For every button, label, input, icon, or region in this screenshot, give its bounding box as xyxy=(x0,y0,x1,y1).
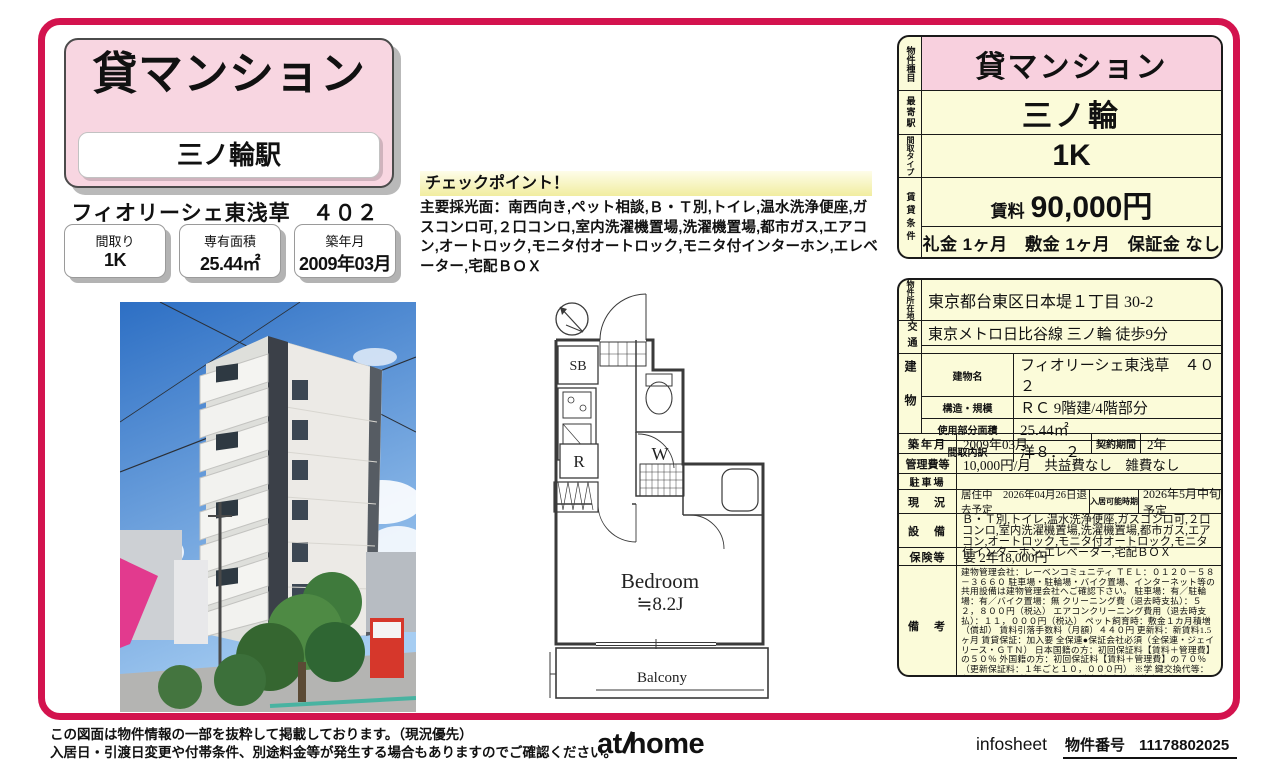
value-contract-period: 2年 xyxy=(1141,434,1221,453)
label-property-type: 物件種目 xyxy=(906,46,915,82)
label-rental-terms: 賃貸条件 xyxy=(906,192,915,244)
badge-layout-value: 1K xyxy=(65,250,165,271)
row-insurance: 保険等 要 2年18,000円 xyxy=(899,547,1221,565)
floorplan-label-w: W xyxy=(652,444,669,464)
label-fees: 管理費等 xyxy=(899,454,957,473)
floorplan-label-r: R xyxy=(573,452,585,471)
label-structure: 構造・規模 xyxy=(922,397,1014,418)
label-insurance: 保険等 xyxy=(899,548,957,565)
value-insurance: 要 2年18,000円 xyxy=(957,548,1221,565)
badge-area: 専有面積 25.44㎡ xyxy=(179,224,281,278)
rent-value: 90,000円 xyxy=(1031,182,1153,226)
value-fees: 10,000円/月 共益費なし 雑費なし xyxy=(957,454,1221,473)
floorplan-label-size: ≒8.2J xyxy=(636,594,683,615)
label-building-name: 建物名 xyxy=(922,354,1014,396)
label-built: 築年月 xyxy=(899,434,957,453)
label-access: 交通 xyxy=(905,321,915,353)
value-station: 三ノ輪 xyxy=(922,91,1221,134)
row-structure: 構造・規模 ＲＣ 9階建/4階部分 xyxy=(922,396,1221,418)
row-status: 現 況 居住中 2026年04月26日退去予定 入居可能時期 2026年5月中旬… xyxy=(899,489,1221,513)
property-number: 物件番号11178802025 xyxy=(1063,734,1237,759)
property-type-box: 貸マンション 三ノ輪駅 xyxy=(64,38,394,188)
value-equipment: Ｂ・Ｔ別,トイレ,温水洗浄便座,ガスコンロ可,２口コンロ,室内洗濯機置場,洗濯機… xyxy=(957,514,1221,547)
label-status: 現 況 xyxy=(899,490,957,513)
footer-notes: この図面は物件情報の一部を抜粋して掲載しております。（現況優先） 入居日・引渡日… xyxy=(50,726,617,761)
north-arrow-icon xyxy=(556,303,588,335)
row-fees: 管理費等 10,000円/月 共益費なし 雑費なし xyxy=(899,453,1221,473)
floorplan-label-bedroom: Bedroom xyxy=(621,569,699,593)
station-name-box: 三ノ輪駅 xyxy=(78,132,380,178)
value-access-line1: 東京メトロ日比谷線 三ノ輪 徒歩9分 xyxy=(922,321,1221,346)
row-equipment: 設 備 Ｂ・Ｔ別,トイレ,温水洗浄便座,ガスコンロ可,２口コンロ,室内洗濯機置場… xyxy=(899,513,1221,547)
row-layout-type: 間取タイプ 1K xyxy=(899,134,1221,177)
label-location: 物件所在地 xyxy=(906,280,914,320)
value-property-type: 貸マンション xyxy=(922,37,1221,90)
footer-note-1: この図面は物件情報の一部を抜粋して掲載しております。（現況優先） xyxy=(50,726,617,744)
row-location: 物件所在地 東京都台東区日本堤１丁目 30-2 xyxy=(899,280,1221,320)
label-move-in: 入居可能時期 xyxy=(1089,490,1139,513)
row-station: 最寄駅 三ノ輪 xyxy=(899,90,1221,134)
row-remarks: 備 考 建物管理会社：レーベンコミュニティ ＴＥＬ：０１２０－５８－３６６０ 駐… xyxy=(899,565,1221,677)
value-remarks: 建物管理会社：レーベンコミュニティ ＴＥＬ：０１２０－５８－３６６０ 駐車場・駐… xyxy=(957,566,1221,677)
value-building-name: フィオリーシェ東浅草 ４０２ xyxy=(1014,354,1221,396)
photo-vending-machine xyxy=(370,618,404,678)
floor-plan: SB R W Bedroom ≒8.2J Balcony xyxy=(536,292,794,716)
badge-built-value: 2009年03月 xyxy=(295,250,395,276)
footer-note-2: 入居日・引渡日変更や付帯条件、別途料金等が発生する場合もありますのでご確認くださ… xyxy=(50,744,617,761)
label-contract-period: 契約期間 xyxy=(1091,434,1141,453)
badge-layout-label: 間取り xyxy=(65,231,165,250)
value-status: 居住中 2026年04月26日退去予定 xyxy=(957,490,1089,513)
rent-label: 賃料 xyxy=(991,197,1025,222)
property-number-value: 11178802025 xyxy=(1139,737,1229,754)
label-building: 建物 xyxy=(904,360,916,428)
badge-row: 間取り 1K 専有面積 25.44㎡ 築年月 2009年03月 xyxy=(64,224,396,278)
badge-layout: 間取り 1K xyxy=(64,224,166,278)
rent-line: 賃料 90,000円 xyxy=(922,178,1221,226)
checkpoint-header: チェックポイント！ xyxy=(420,171,872,196)
property-name: フィオリーシェ東浅草 ４０２ xyxy=(50,197,400,227)
athome-logo-at: at xyxy=(597,728,622,761)
deposit-terms: 礼金 1ヶ月 敷金 1ヶ月 保証金 なし xyxy=(922,226,1221,257)
label-equipment: 設 備 xyxy=(899,514,957,547)
row-building: 建物 建物名 フィオリーシェ東浅草 ４０２ 構造・規模 ＲＣ 9階建/4階部分 … xyxy=(899,353,1221,433)
property-number-label: 物件番号 xyxy=(1065,737,1125,754)
floorplan-label-balcony: Balcony xyxy=(637,670,687,686)
checkpoint-body: 主要採光面：南西向き,ペット相談,Ｂ・Ｔ別,トイレ,温水洗浄便座,ガスコンロ可,… xyxy=(420,199,880,277)
infosheet-page: 貸マンション 三ノ輪駅 フィオリーシェ東浅草 ４０２ 間取り 1K 専有面積 2… xyxy=(0,0,1280,761)
value-access-line2 xyxy=(922,346,1221,353)
label-layout-type: 間取タイプ xyxy=(906,136,914,176)
label-remarks: 備 考 xyxy=(899,566,957,677)
value-built: 2009年03月 xyxy=(957,434,1091,453)
value-move-in: 2026年5月中旬予定 xyxy=(1139,490,1221,513)
label-parking: 駐車場 xyxy=(899,474,957,489)
value-location: 東京都台東区日本堤１丁目 30-2 xyxy=(922,280,1221,320)
badge-built-label: 築年月 xyxy=(295,231,395,250)
badge-built: 築年月 2009年03月 xyxy=(294,224,396,278)
athome-logo-home: home xyxy=(629,728,704,761)
row-access: 交通 東京メトロ日比谷線 三ノ輪 徒歩9分 xyxy=(899,320,1221,353)
badge-area-label: 専有面積 xyxy=(180,231,280,250)
value-layout-type: 1K xyxy=(922,135,1221,177)
building-photo xyxy=(120,302,416,712)
floorplan-label-sb: SB xyxy=(569,359,586,374)
details-table: 物件所在地 東京都台東区日本堤１丁目 30-2 交通 東京メトロ日比谷線 三ノ輪… xyxy=(897,278,1223,677)
infosheet-word: infosheet xyxy=(976,734,1047,755)
summary-table: 物件種目 貸マンション 最寄駅 三ノ輪 間取タイプ 1K 賃貸条件 賃料 90,… xyxy=(897,35,1223,259)
row-building-name: 建物名 フィオリーシェ東浅草 ４０２ xyxy=(922,354,1221,396)
badge-area-value: 25.44㎡ xyxy=(180,250,280,276)
athome-logo: at home xyxy=(597,728,704,761)
row-rental-terms: 賃貸条件 賃料 90,000円 礼金 1ヶ月 敷金 1ヶ月 保証金 なし xyxy=(899,177,1221,257)
row-built-contract: 築年月 2009年03月 契約期間 2年 xyxy=(899,433,1221,453)
label-station: 最寄駅 xyxy=(906,96,915,129)
value-structure: ＲＣ 9階建/4階部分 xyxy=(1014,397,1221,418)
row-property-type: 物件種目 貸マンション xyxy=(899,37,1221,90)
property-type-title: 貸マンション xyxy=(66,40,392,97)
footer-infosheet: infosheet 物件番号11178802025 xyxy=(976,734,1237,759)
